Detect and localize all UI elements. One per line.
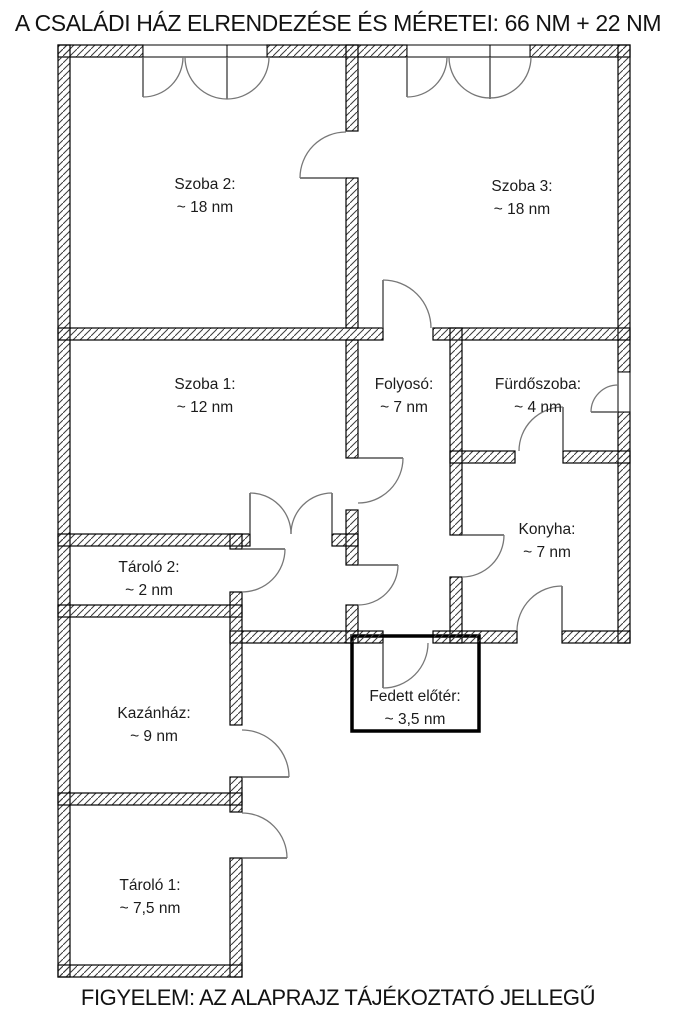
room-name: Szoba 3: <box>491 175 552 198</box>
room-size: ~ 3,5 nm <box>369 708 460 731</box>
wall-corridor-right-upper <box>450 328 462 535</box>
wall-kazanhaz-tarolo1 <box>58 793 242 805</box>
room-label-szoba-1: Szoba 1: ~ 12 nm <box>174 373 235 420</box>
window-szoba3-swing <box>407 57 531 99</box>
door-tarolo2 <box>242 549 285 592</box>
wall-right-lower <box>618 412 630 643</box>
door-szoba1-corridor <box>358 458 403 503</box>
wall-mid-horizontal-left <box>58 328 383 340</box>
wall-wing-right-a <box>230 534 242 549</box>
wall-left-outer <box>58 45 70 977</box>
wall-center-top-b <box>346 178 358 328</box>
room-size: ~ 7 nm <box>519 541 576 564</box>
wall-center-mid-a <box>346 340 358 458</box>
room-name: Fedett előtér: <box>369 685 460 708</box>
wall-bath-kitchen-right <box>563 451 630 463</box>
windows <box>143 45 630 412</box>
room-name: Folyosó: <box>375 373 434 396</box>
door-szoba3-corridor <box>383 280 431 328</box>
room-size: ~ 7 nm <box>375 396 434 419</box>
wall-top-center <box>267 45 407 57</box>
wall-bath-kitchen-left <box>450 451 515 463</box>
floor-plan-page: A CSALÁDI HÁZ ELRENDEZÉSE ÉS MÉRETEI: 66… <box>0 0 676 1024</box>
floor-plan-drawing <box>0 0 676 1024</box>
door-konyha-back <box>517 586 562 631</box>
window-bathroom-frame <box>618 372 630 412</box>
wall-top-right <box>530 45 630 57</box>
room-name: Szoba 1: <box>174 373 235 396</box>
room-label-szoba-2: Szoba 2: ~ 18 nm <box>174 173 235 220</box>
room-name: Tároló 1: <box>119 874 180 897</box>
wall-center-top-a <box>346 45 358 131</box>
door-tarolo1 <box>242 813 287 858</box>
room-size: ~ 7,5 nm <box>119 897 180 920</box>
wall-tarolo2-kazanhaz <box>58 605 242 617</box>
window-bathroom-swing <box>591 385 618 412</box>
room-size: ~ 12 nm <box>174 396 235 419</box>
window-szoba2-swing <box>143 57 269 99</box>
window-szoba3-frame <box>407 45 530 57</box>
room-label-szoba-3: Szoba 3: ~ 18 nm <box>491 175 552 222</box>
room-size: ~ 18 nm <box>491 198 552 221</box>
wall-bottom-center <box>433 631 517 643</box>
room-label-tarolo-2: Tároló 2: ~ 2 nm <box>118 556 179 603</box>
door-szoba2-szoba3 <box>300 132 346 178</box>
wall-wing-right-d <box>230 858 242 977</box>
wall-szoba1-bottom-left <box>58 534 250 546</box>
room-label-konyha: Konyha: ~ 7 nm <box>519 518 576 565</box>
door-kazanhaz <box>242 730 289 777</box>
room-size: ~ 2 nm <box>118 579 179 602</box>
room-label-tarolo-1: Tároló 1: ~ 7,5 nm <box>119 874 180 921</box>
room-label-kazanhaz: Kazánház: ~ 9 nm <box>117 702 190 749</box>
wall-top-left <box>58 45 143 57</box>
room-name: Konyha: <box>519 518 576 541</box>
room-label-furdoszoba: Fürdőszoba: ~ 4 nm <box>495 373 581 420</box>
wall-right-upper <box>618 45 630 372</box>
room-size: ~ 4 nm <box>495 396 581 419</box>
door-vestibule-corridor <box>358 565 398 605</box>
double-door-szoba1 <box>250 493 332 534</box>
window-szoba2-frame <box>143 45 267 57</box>
room-label-fedett-eloter: Fedett előtér: ~ 3,5 nm <box>369 685 460 732</box>
wall-bottom-right <box>562 631 630 643</box>
wall-wing-bottom <box>58 965 242 977</box>
room-label-folyoso: Folyosó: ~ 7 nm <box>375 373 434 420</box>
door-konyha-corridor <box>462 535 504 577</box>
page-footer: FIGYELEM: AZ ALAPRAJZ TÁJÉKOZTATÓ JELLEG… <box>0 985 676 1011</box>
room-name: Kazánház: <box>117 702 190 725</box>
room-name: Tároló 2: <box>118 556 179 579</box>
room-size: ~ 18 nm <box>174 196 235 219</box>
wall-bottom-left <box>230 631 383 643</box>
wall-szoba1-bottom-right <box>332 534 358 546</box>
room-name: Szoba 2: <box>174 173 235 196</box>
room-name: Fürdőszoba: <box>495 373 581 396</box>
room-size: ~ 9 nm <box>117 725 190 748</box>
